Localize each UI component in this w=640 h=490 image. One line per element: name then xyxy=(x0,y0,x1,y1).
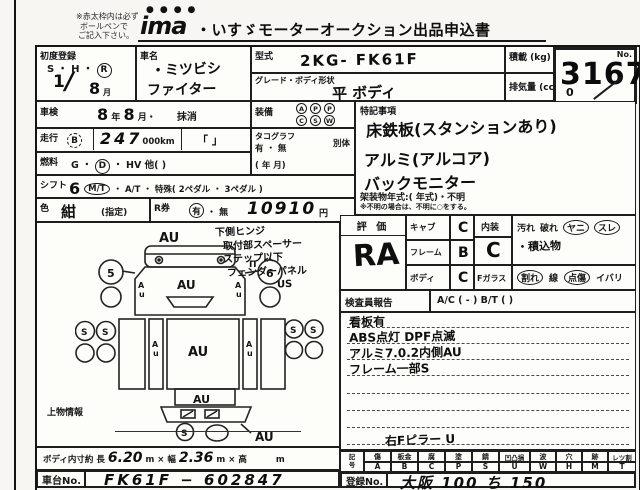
inspection-value: 8 年 8 月・ 抹消 xyxy=(97,105,197,124)
r-ticket-price: 10910 xyxy=(247,199,316,219)
body-label: ボディ xyxy=(410,272,435,284)
legend-symbol-label: 記号 xyxy=(347,454,357,469)
fglass-label: Fガラス xyxy=(477,273,506,284)
frame-label: フレーム xyxy=(410,247,442,258)
mileage-cell: 走行 B 247 000km 「 」 xyxy=(36,128,251,152)
inspection-year-value: 8 xyxy=(97,105,108,124)
scan-edge-line xyxy=(14,0,16,490)
grade-body-label: グレード・ボディ形状 xyxy=(255,75,334,86)
chassis-row: 車台No. FK61F − 602847 xyxy=(36,470,340,488)
dimensions-width-label: m × 幅 xyxy=(145,453,175,465)
color-cell: 色 紺 (指定) xyxy=(36,198,150,222)
equipment-label: 装備 xyxy=(255,105,273,118)
fglass-opt-crack-circled: 割れ xyxy=(517,270,543,285)
payload-label: 積載 (kg) xyxy=(509,50,551,63)
inspector-notes-cell: 看板有 ABS点灯 DPF点滅 アルミ7.0.2内側AU フレーム一部S 右Fピ… xyxy=(340,312,636,450)
red-frame-note-line3: ご記入下さい。 xyxy=(76,31,139,41)
mileage-unit: 000km xyxy=(142,137,174,147)
interior-label: 内装 xyxy=(481,220,499,233)
r-ticket-label: R券 xyxy=(154,201,170,214)
body-year-footnote: ※不明の場合は、不明に○をする。 xyxy=(360,202,471,212)
equipment-badge-pw: P W xyxy=(324,103,335,126)
r-ticket-cell: R券 有 ・ 無 10910 円 xyxy=(150,198,355,222)
red-frame-note-line2: ボールペンで xyxy=(76,22,139,32)
shift-options: 6 M/T ・ A/T ・ 特殊( 2ペダル ・ 3ペダル ) xyxy=(69,179,263,198)
equipment-badge-ps: P S xyxy=(310,103,321,126)
inspector-label-cell: 検査員報告 xyxy=(340,290,430,312)
frame-label-cell: フレーム xyxy=(406,240,450,265)
fuel-label: 燃料 xyxy=(40,155,58,168)
fglass-opt-ibari: イバリ xyxy=(596,271,623,284)
interior-value-cell: C xyxy=(474,237,512,265)
color-label: 色 xyxy=(40,201,49,214)
fuel-diesel-circled: D xyxy=(95,159,110,174)
fglass-opt-chip-circled: 点傷 xyxy=(564,270,590,285)
interior-options: 汚れ 破れ ヤニ スレ xyxy=(517,220,620,235)
diagram-mark-cab-left-u: u xyxy=(139,290,145,299)
auction-application-form: ※赤太枠内は必ず ボールペンで ご記入下さい。 ●●●● ima ・いすゞモータ… xyxy=(0,0,640,490)
dimensions-length-label: 長 xyxy=(96,453,105,465)
diagram-mark-bumper-au: AU xyxy=(255,430,274,444)
cab-value: C xyxy=(458,220,468,236)
diagram-mark-wheel-r2: S xyxy=(310,326,316,336)
chassis-label-box: 車台No. xyxy=(39,472,86,487)
cab-value-cell: C xyxy=(450,215,474,240)
legend-code-b: B xyxy=(392,463,417,471)
shift-label: シフト xyxy=(40,178,67,191)
special-note-line2: アルミ(アルコア) xyxy=(364,145,490,171)
legend-head-ana: 穴 xyxy=(557,452,581,462)
legend-head-dent: 凹凸損 xyxy=(500,452,529,462)
inspection-cell: 車検 8 年 8 月・ 抹消 xyxy=(36,101,251,128)
tachograph-label: タコグラフ xyxy=(255,131,295,142)
legend-code-a: A xyxy=(365,463,390,471)
interior-value: C xyxy=(486,238,501,262)
legend-code-p: P xyxy=(446,463,471,471)
interior-opt-tear: 破れ xyxy=(540,221,558,234)
inspector-acbt-cell: A/C ( - ) B/T ( ) xyxy=(430,290,636,312)
legend-head-nuri: 塗 xyxy=(446,452,471,462)
model-code-label: 型式 xyxy=(255,49,273,62)
interior-opt-tar-circled: ヤニ xyxy=(563,220,589,235)
special-notes-cell: 特記事項 床鉄板(スタンションあり) アルミ(アルコア) バックモニター 架装物… xyxy=(355,101,636,215)
fglass-options: 割れ 線 点傷 イバリ xyxy=(517,270,623,285)
displacement-label: 排気量 (cc) xyxy=(509,80,558,93)
diagram-mark-bed-left-a: A xyxy=(152,340,159,349)
diagram-mark-cab-right-a: A xyxy=(235,281,242,290)
diagram-mark-top-au: AU xyxy=(159,231,179,246)
legend-head-kizu: 傷 xyxy=(365,452,390,462)
fglass-notes-cell: 割れ 線 点傷 イバリ xyxy=(512,265,636,290)
legend-code-c: C xyxy=(419,463,444,471)
legend-head-ato: 跡 xyxy=(583,452,607,462)
body-value-cell: C xyxy=(450,265,474,290)
legend-code-h: H xyxy=(557,463,581,471)
legend-code-w: W xyxy=(531,463,555,471)
mileage-grade-badge: B xyxy=(67,133,82,148)
interior-label-cell: 内装 xyxy=(474,215,512,237)
inspector-note-4: フレーム一部S xyxy=(349,359,430,377)
dimensions-label: ボディ内寸約 xyxy=(43,453,93,465)
cargo-info-line xyxy=(115,431,301,432)
auction-number-scribble: 0 xyxy=(566,86,574,99)
ima-logo: ima xyxy=(140,12,186,40)
legend-code-s: S xyxy=(473,463,498,471)
truck-top-view-diagram: AU AU A u A u 5 Π 6 AU A u A u S S S S A… xyxy=(75,227,325,444)
diagram-mark-cab-right-u: u xyxy=(236,290,242,299)
dimensions-height-unit: m xyxy=(276,455,285,465)
first-registration-cell: 初度登録 S ・ H ・ R 1 / 8 月 xyxy=(36,46,136,101)
diagram-mark-mirror-left: 5 xyxy=(107,267,115,280)
grade-body-cell: グレード・ボディ形状 平 ボディ xyxy=(251,73,505,101)
cab-label-cell: キャブ xyxy=(406,215,450,240)
diagram-mark-pi: Π xyxy=(249,260,257,270)
inspection-label: 車検 xyxy=(40,105,58,118)
legend-head-nami: 波 xyxy=(531,452,555,462)
tachograph-date: ( 年 月) xyxy=(255,159,286,171)
legend-head-sabi: 錆 xyxy=(473,452,498,462)
legend-code-t: T xyxy=(609,463,635,471)
era-circled-r: R xyxy=(97,63,112,78)
diagram-mark-tail-au: AU xyxy=(193,393,210,406)
cab-label: キャブ xyxy=(410,221,436,233)
legend-head-bankin: 板金 xyxy=(392,452,417,462)
chassis-value: FK61F − 602847 xyxy=(104,471,285,489)
registration-label-box: 登録No. xyxy=(343,474,388,487)
model-code-value: 2KG‐ FK61F xyxy=(300,50,419,70)
frame-value-cell: B xyxy=(450,240,474,265)
interior-notes-cell: 汚れ 破れ ヤニ スレ ・積込物 xyxy=(512,215,636,265)
shift-mt-circled: M/T xyxy=(84,183,109,195)
form-title: ・いすゞモーターオークション出品申込書 xyxy=(196,19,491,40)
registration-value: 大阪 100 ち 150 xyxy=(400,472,547,490)
diagram-mark-mirror-right: 6 xyxy=(266,267,274,280)
damage-legend-table: 記号 傷 A 板金 B 腐 C 塗 P 錆 S 凹凸損 U 波 W 穴 H 跡 … xyxy=(340,450,636,472)
auction-number-box: No. 3167 0 xyxy=(553,47,637,104)
shift-value: 6 xyxy=(69,179,80,198)
evaluation-overall-cell: 評 価 RA xyxy=(340,215,406,290)
tachograph-separate: 別体 xyxy=(333,137,350,149)
equipment-badge-ac: A C xyxy=(296,103,307,126)
diagram-mark-wheel-l2: S xyxy=(102,328,108,338)
chassis-label: 車台No. xyxy=(42,472,81,487)
mileage-label: 走行 xyxy=(40,131,58,144)
inspection-month-value: 8 xyxy=(123,105,134,124)
equipment-cell: 装備 A C P S P W xyxy=(251,101,355,128)
color-value: 紺 xyxy=(61,201,77,223)
diagram-mark-bed-au: AU xyxy=(188,345,208,360)
interior-opt-dirt: 汚れ xyxy=(517,221,535,234)
legend-symbol-cell: 記号 xyxy=(340,450,364,472)
fuel-cell: 燃料 G ・ D ・ HV 他( ) xyxy=(36,152,251,175)
model-code-cell: 型式 2KG‐ FK61F xyxy=(251,46,505,73)
legend-code-m: M xyxy=(583,463,607,471)
first-reg-month-unit: 月 xyxy=(103,87,111,98)
legend-head-fu: 腐 xyxy=(419,452,444,462)
r-ticket-no: ・ 無 xyxy=(207,205,228,218)
legend-head-retsuwari: レツ割 xyxy=(609,452,635,462)
equipment-badges: A C P S P W xyxy=(296,103,335,126)
evaluation-label: 評 価 xyxy=(341,218,405,236)
dimensions-row: ボディ内寸約 長 6.20 m × 幅 2.36 m × 高 m xyxy=(36,447,340,470)
vehicle-diagram-box: 下側ヒンジ 取付部スペーサー ステップ以下 フェンダーパネル US xyxy=(36,222,340,447)
diagram-mark-wheel-r1: S xyxy=(290,326,296,336)
inspector-acbt: A/C ( - ) B/T ( ) xyxy=(437,295,513,306)
mileage-value-box: 247 000km xyxy=(93,129,182,150)
special-note-line1: 床鉄板(スタンションあり) xyxy=(366,113,557,142)
first-reg-slash-mark: / xyxy=(65,67,74,95)
special-notes-label: 特記事項 xyxy=(360,104,396,117)
interior-note: ・積込物 xyxy=(517,237,562,255)
diagram-mark-bed-right-a: A xyxy=(246,340,253,349)
frame-value: B xyxy=(458,245,469,261)
body-value: C xyxy=(458,270,468,286)
cargo-info-label: 上物情報 xyxy=(47,405,83,418)
dimensions-width-value: 2.36 xyxy=(179,450,214,466)
dimensions-height-label: m × 高 xyxy=(216,453,246,465)
interior-opt-wear-circled: スレ xyxy=(594,220,620,235)
red-frame-note: ※赤太枠内は必ず ボールペンで ご記入下さい。 xyxy=(76,12,139,41)
red-frame-note-line1: ※赤太枠内は必ず xyxy=(76,12,139,22)
evaluation-overall-value: RA xyxy=(352,237,400,274)
fglass-opt-line: 線 xyxy=(549,271,558,284)
diagram-mark-bed-right-u: u xyxy=(247,349,253,358)
registration-label: 登録No. xyxy=(346,474,383,488)
inspector-label: 検査員報告 xyxy=(345,295,393,309)
r-ticket-yes-circled: 有 xyxy=(189,203,204,218)
first-reg-month-value: 8 xyxy=(89,79,100,98)
mileage-value: 247 xyxy=(100,129,142,148)
fglass-label-cell: Fガラス xyxy=(474,265,512,290)
diagram-mark-wheel-l1: S xyxy=(81,328,87,338)
car-name-cell: 車名 ・ミツビシ ファイター xyxy=(136,46,251,101)
body-label-cell: ボディ xyxy=(406,265,450,290)
color-designation: (指定) xyxy=(101,205,127,218)
car-name-model: ファイター xyxy=(147,78,217,99)
registration-row: 登録No. 大阪 100 ち 150 xyxy=(340,472,636,488)
first-reg-year-value: 1 xyxy=(53,72,65,92)
fuel-options: G ・ D ・ HV 他( ) xyxy=(71,157,166,174)
legend-code-u: U xyxy=(500,463,529,471)
diagram-mark-cab-au: AU xyxy=(177,278,196,292)
tachograph-cell: タコグラフ 有 ・ 無 別体 ( 年 月) xyxy=(251,128,355,175)
mileage-brackets: 「 」 xyxy=(197,132,223,148)
shift-cell: シフト 6 M/T ・ A/T ・ 特殊( 2ペダル ・ 3ペダル ) xyxy=(36,175,355,198)
dimensions-content: ボディ内寸約 長 6.20 m × 幅 2.36 m × 高 m xyxy=(43,450,285,466)
inspection-erased: 抹消 xyxy=(177,112,197,123)
r-ticket-unit: 円 xyxy=(319,206,328,219)
diagram-mark-bed-left-u: u xyxy=(153,349,159,358)
dimensions-length-value: 6.20 xyxy=(108,450,143,466)
tachograph-options: 有 ・ 無 xyxy=(255,142,286,154)
car-name-maker: ・ミツビシ xyxy=(151,58,222,80)
diagram-mark-cab-left-a: A xyxy=(138,281,145,290)
inspector-pillar-note: 右Fピラー U xyxy=(385,430,456,449)
